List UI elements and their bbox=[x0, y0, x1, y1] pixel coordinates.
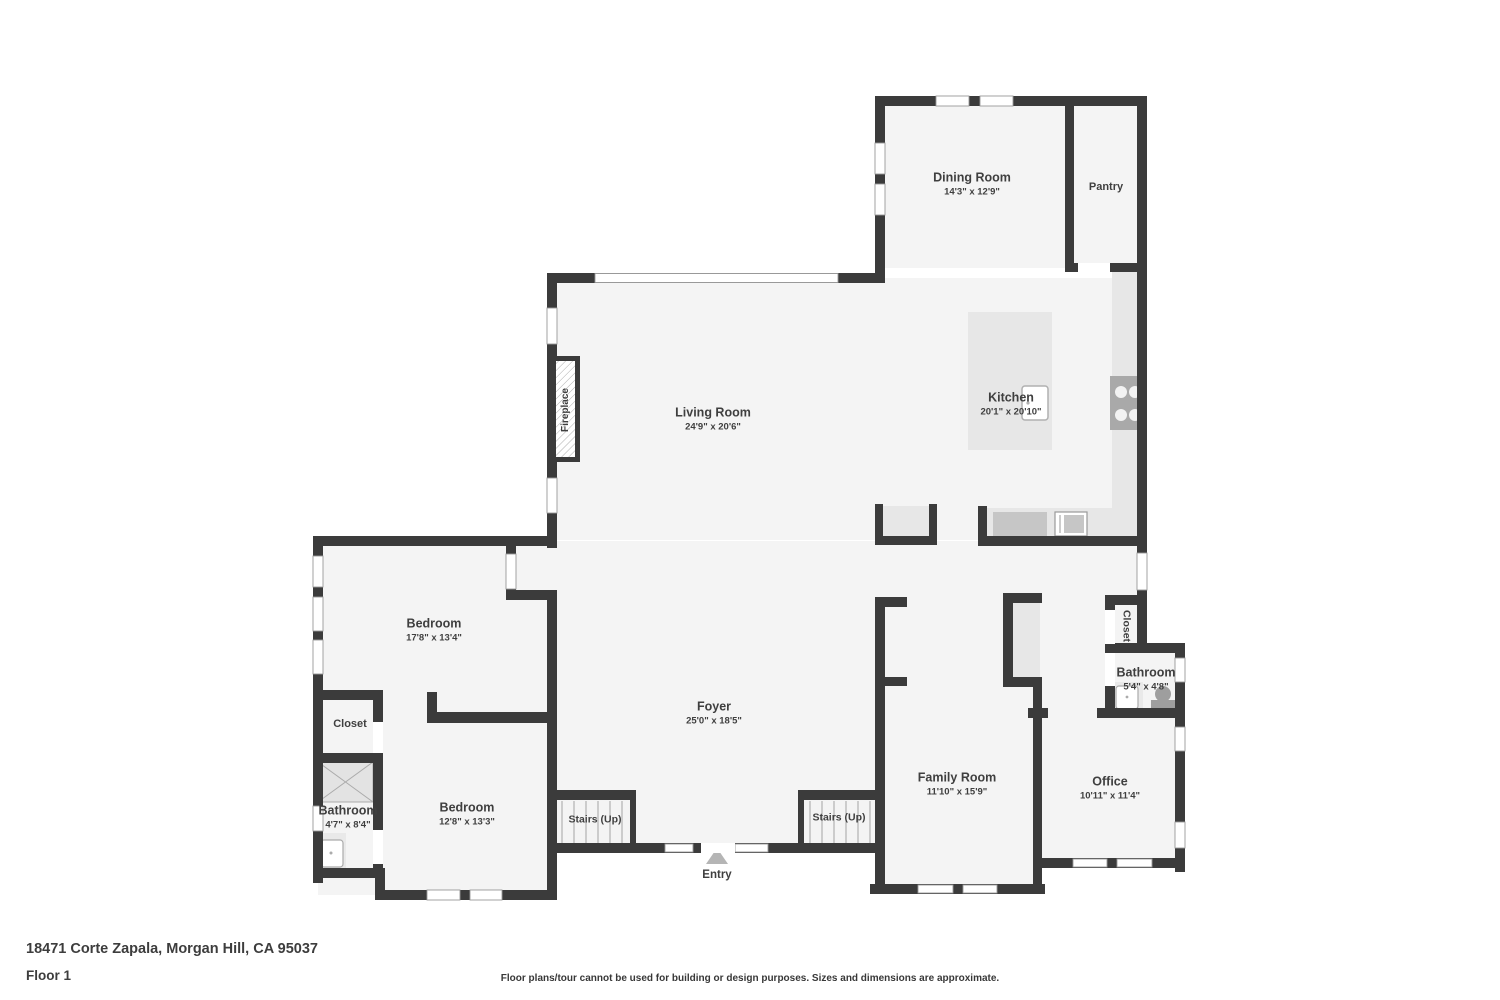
wall-stairs-left-side bbox=[630, 790, 636, 850]
wall-niche-left bbox=[1003, 593, 1013, 687]
door-pantry bbox=[1078, 263, 1110, 272]
window-dining-top-1 bbox=[936, 96, 969, 106]
door-bathroom-left bbox=[373, 830, 383, 864]
room-name: Living Room bbox=[675, 405, 751, 421]
room-name: Closet bbox=[333, 718, 367, 732]
room-name: Bathroom bbox=[318, 803, 377, 819]
label-pantry: Pantry bbox=[1089, 181, 1123, 195]
label-stairs-right: Stairs (Up) bbox=[812, 811, 865, 824]
room-name: Bathroom bbox=[1116, 665, 1175, 681]
window-entry-sidelite-1 bbox=[665, 844, 693, 852]
wall-stairs-left-top bbox=[547, 790, 636, 800]
disclaimer-text: Floor plans/tour cannot be used for buil… bbox=[0, 973, 1500, 984]
window-living-left-2 bbox=[547, 478, 557, 513]
opening-bedroom1-door bbox=[506, 554, 516, 589]
kitchen-island bbox=[968, 312, 1052, 450]
floor-areas bbox=[318, 103, 1183, 895]
window-office-bottom-1 bbox=[1073, 859, 1107, 867]
floor-foyer bbox=[552, 541, 880, 848]
window-bedroom1-left-2 bbox=[313, 597, 323, 631]
wall-family-west bbox=[875, 597, 885, 893]
label-fireplace: Fireplace bbox=[560, 388, 573, 432]
window-office-right-1 bbox=[1175, 727, 1185, 751]
room-name: Dining Room bbox=[933, 170, 1011, 186]
room-name: Stairs (Up) bbox=[568, 813, 621, 825]
window-bedroom2-bottom-2 bbox=[470, 890, 502, 900]
window-bedroom2-bottom-1 bbox=[427, 890, 460, 900]
wall-bedroom-top bbox=[313, 536, 557, 546]
room-name: Family Room bbox=[918, 770, 997, 786]
wall-stairs-right-top bbox=[798, 790, 885, 800]
label-bathroom-left: Bathroom 4'7" x 8'4" bbox=[318, 803, 377, 831]
room-dims: 10'11" x 11'4" bbox=[1080, 790, 1140, 802]
room-dims: 17'8" x 13'4" bbox=[406, 632, 462, 644]
hall-niche bbox=[1013, 603, 1040, 677]
wall-bedroom2-right bbox=[547, 590, 557, 900]
window-living-left-1 bbox=[547, 308, 557, 344]
sink-faucet-dot bbox=[330, 852, 333, 855]
room-dims: 4'7" x 8'4" bbox=[318, 819, 377, 831]
room-name: Fireplace bbox=[560, 388, 571, 432]
window-bedroom1-left-3 bbox=[313, 640, 323, 674]
window-living-top bbox=[595, 274, 838, 283]
wall-family-bottom bbox=[870, 884, 1045, 894]
wall-bedroom-divider-stub bbox=[427, 692, 437, 723]
window-office-right-2 bbox=[1175, 822, 1185, 848]
wall-stairs-right-side bbox=[798, 790, 804, 850]
window-family-bottom-2 bbox=[963, 885, 997, 893]
label-bathroom-right: Bathroom 5'4" x 4'8" bbox=[1116, 665, 1175, 693]
room-name: Bedroom bbox=[439, 800, 495, 816]
window-bedroom1-left-1 bbox=[313, 556, 323, 587]
wall-bedroom2-bottom bbox=[375, 890, 557, 900]
counter-block bbox=[993, 512, 1047, 536]
room-name: Pantry bbox=[1089, 181, 1123, 195]
wall-right-upper bbox=[1137, 96, 1147, 546]
wall-office-bottom bbox=[1033, 858, 1185, 868]
door-entry-opening bbox=[701, 843, 735, 853]
label-office: Office 10'11" x 11'4" bbox=[1080, 774, 1140, 802]
property-address: 18471 Corte Zapala, Morgan Hill, CA 9503… bbox=[26, 941, 318, 957]
label-closet-right: Closet bbox=[1119, 610, 1132, 642]
room-dims: 5'4" x 4'8" bbox=[1116, 681, 1175, 693]
room-name: Closet bbox=[1121, 610, 1133, 642]
room-name: Bedroom bbox=[406, 616, 462, 632]
wall-kitchen-bottom-end bbox=[978, 506, 987, 546]
room-name: Stairs (Up) bbox=[812, 811, 865, 823]
label-bedroom-2: Bedroom 12'8" x 13'3" bbox=[439, 800, 495, 828]
wall-closet-right-side bbox=[1137, 595, 1147, 643]
floor-plan-page: Dining Room 14'3" x 12'9" Pantry Living … bbox=[0, 0, 1500, 1000]
label-kitchen: Kitchen 20'1" x 20'10" bbox=[980, 390, 1041, 418]
wall-bathroom-right-bottom bbox=[1097, 708, 1185, 718]
wall-alcove-right bbox=[929, 504, 937, 545]
window-office-bottom-2 bbox=[1117, 859, 1152, 867]
floor-living-kitchen bbox=[552, 278, 1142, 540]
window-dining-left-2 bbox=[875, 184, 885, 215]
window-entry-sidelite-2 bbox=[735, 844, 768, 852]
wall-kitchen-bottom bbox=[978, 536, 1147, 546]
label-family-room: Family Room 11'10" x 15'9" bbox=[918, 770, 997, 798]
window-family-bottom-1 bbox=[918, 885, 953, 893]
kitchen-alcove bbox=[883, 506, 929, 536]
label-entry: Entry bbox=[702, 868, 731, 882]
wall-bathroom-left-bottom bbox=[313, 868, 383, 878]
room-name: Entry bbox=[702, 869, 731, 881]
label-closet-left: Closet bbox=[333, 718, 367, 732]
window-bathroom-right bbox=[1175, 658, 1185, 682]
window-right-mid bbox=[1137, 553, 1147, 590]
floor-plan-drawing bbox=[0, 0, 1500, 1000]
wall-bathroom-left-top bbox=[313, 753, 383, 763]
wall-family-stub-top bbox=[880, 597, 907, 607]
room-name: Foyer bbox=[686, 699, 742, 715]
wall-bathroom-right-top bbox=[1105, 643, 1185, 653]
room-dims: 25'0" x 18'5" bbox=[686, 715, 742, 727]
wall-bedroom-divider bbox=[430, 712, 557, 723]
room-dims: 12'8" x 13'3" bbox=[439, 816, 495, 828]
sink-faucet-dot bbox=[1126, 696, 1129, 699]
dishwasher-panel bbox=[1064, 515, 1084, 533]
stove-burner bbox=[1115, 409, 1127, 421]
wall-pantry-left bbox=[1065, 103, 1074, 272]
room-dims: 11'10" x 15'9" bbox=[918, 786, 997, 798]
room-name: Office bbox=[1080, 774, 1140, 790]
wall-hall-stub bbox=[1028, 708, 1048, 718]
door-closet-right bbox=[1105, 610, 1115, 644]
door-bathroom-right bbox=[1105, 653, 1115, 686]
label-foyer: Foyer 25'0" x 18'5" bbox=[686, 699, 742, 727]
wall-alcove-bottom bbox=[875, 536, 937, 545]
room-dims: 14'3" x 12'9" bbox=[933, 186, 1011, 198]
stove-burner bbox=[1115, 386, 1127, 398]
room-name: Kitchen bbox=[980, 390, 1041, 406]
wall-family-stub-mid bbox=[878, 677, 907, 686]
wall-closet-left-top bbox=[313, 690, 383, 700]
window-dining-left-1 bbox=[875, 143, 885, 174]
door-closet-left bbox=[373, 722, 383, 753]
label-stairs-left: Stairs (Up) bbox=[568, 813, 621, 826]
window-dining-top-2 bbox=[980, 96, 1013, 106]
label-bedroom-1: Bedroom 17'8" x 13'4" bbox=[406, 616, 462, 644]
room-dims: 20'1" x 20'10" bbox=[980, 406, 1041, 418]
room-dims: 24'9" x 20'6" bbox=[675, 421, 751, 433]
label-dining-room: Dining Room 14'3" x 12'9" bbox=[933, 170, 1011, 198]
label-living-room: Living Room 24'9" x 20'6" bbox=[675, 405, 751, 433]
wall-niche-bottom bbox=[1003, 677, 1042, 687]
